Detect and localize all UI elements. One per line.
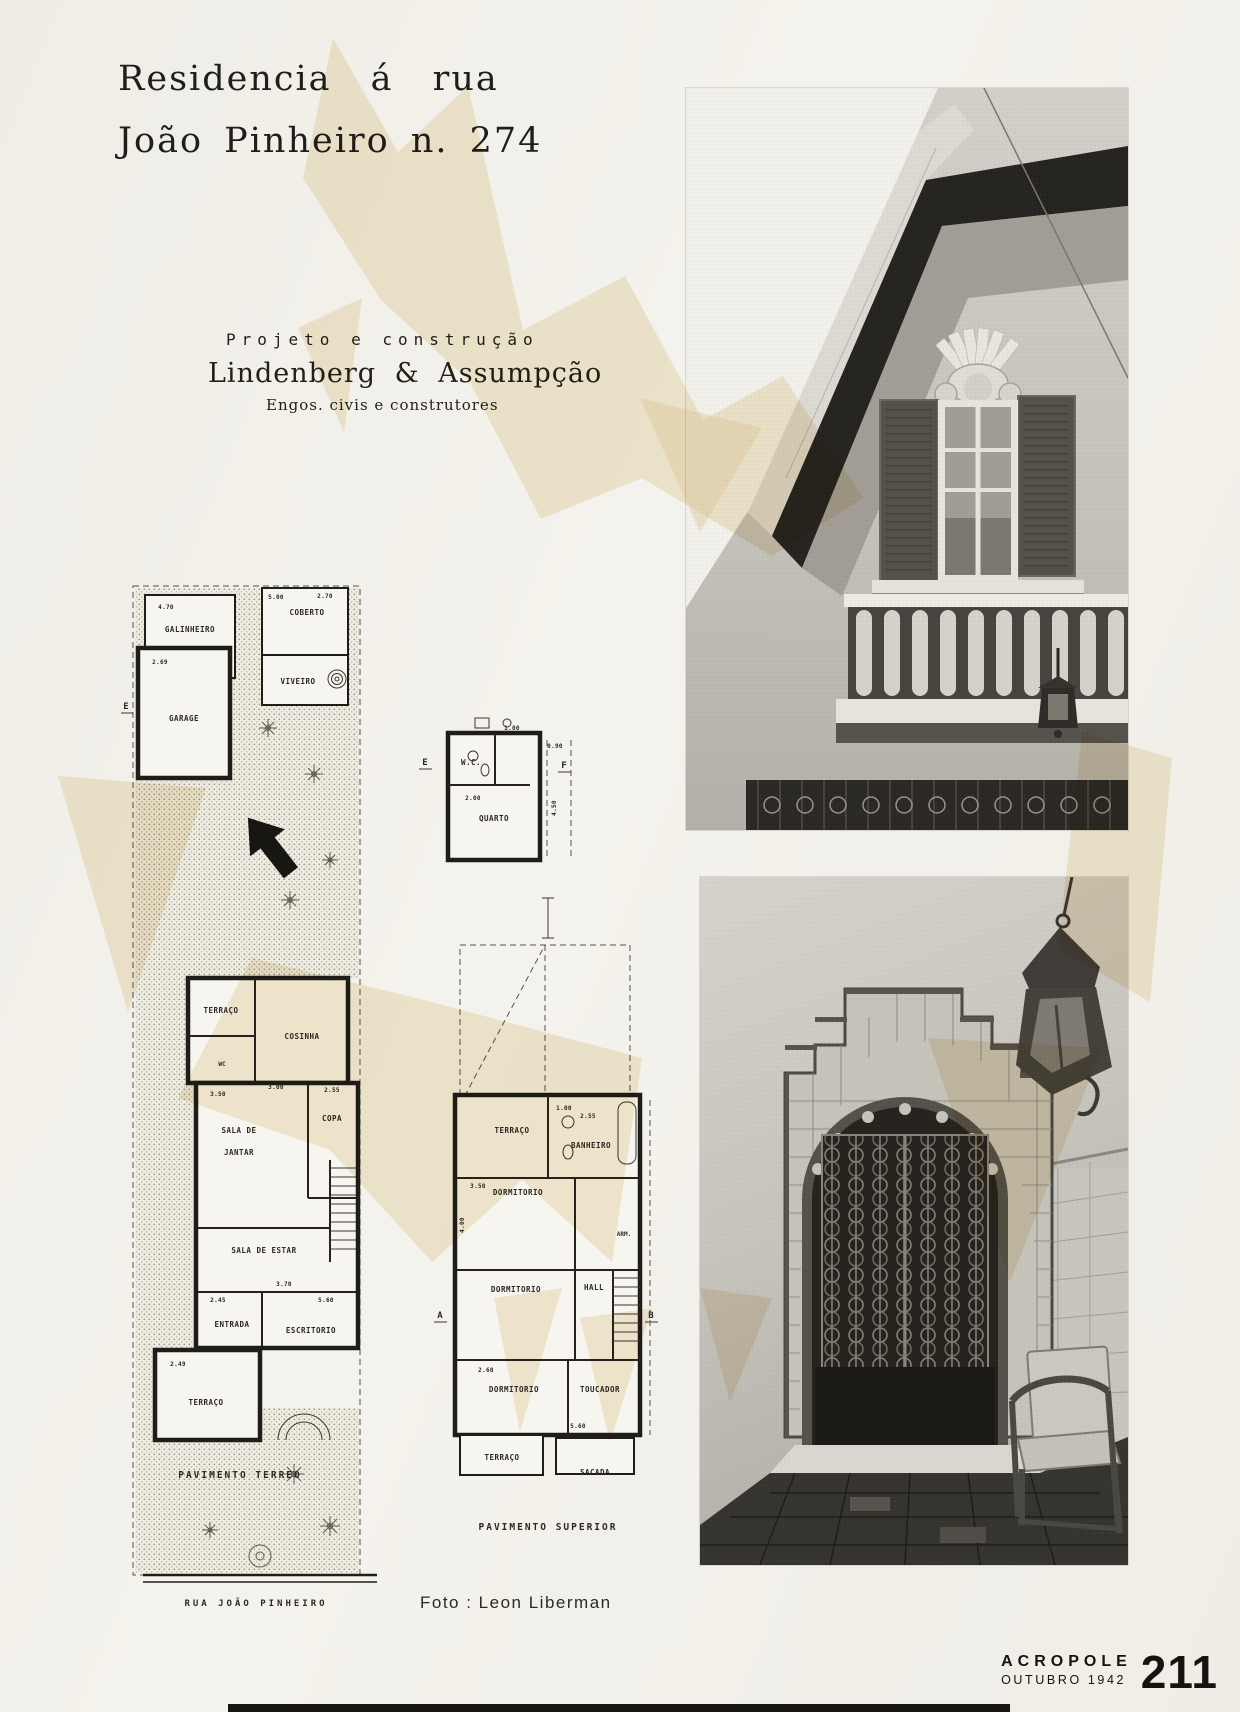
entrance-photo	[700, 877, 1128, 1565]
label-sala-jantar-2: JANTAR	[224, 1148, 254, 1157]
label-wc-kitchen: WC	[218, 1061, 226, 1068]
dim: 2.55	[324, 1087, 340, 1094]
upper-floor-plan: TERRAÇO BANHEIRO DORMITORIO ARM. DORMITO…	[428, 890, 663, 1550]
label-sala-estar: SALA DE ESTAR	[231, 1246, 296, 1255]
credit-line-1: Projeto e construção	[226, 330, 602, 349]
label-escritorio: ESCRITORIO	[286, 1326, 336, 1335]
page-title: Residencia á rua João Pinheiro n. 274	[118, 48, 542, 172]
window-balcony-photo	[686, 88, 1128, 830]
dim: 4.50	[551, 800, 558, 816]
label-cosinha: COSINHA	[284, 1032, 319, 1041]
page-footer: ACROPOLE OUTUBRO 1942 211	[1001, 1650, 1218, 1694]
project-credit: Projeto e construção Lindenberg & Assump…	[208, 330, 602, 414]
dim: 2.55	[580, 1113, 596, 1120]
photo-credit: Foto : Leon Liberman	[420, 1593, 612, 1613]
label-terraco-back: TERRAÇO	[494, 1126, 529, 1135]
scan-edge-strip	[228, 1704, 1010, 1712]
dim: 2.70	[317, 593, 333, 600]
section-marker-e: E	[422, 758, 427, 768]
label-quarto: QUARTO	[479, 814, 509, 823]
label-viveiro: VIVEIRO	[280, 677, 315, 686]
dim: 0.90	[547, 743, 563, 750]
dim: 5.60	[570, 1423, 586, 1430]
label-sala-jantar-1: SALA DE	[221, 1126, 256, 1135]
dim: 3.50	[470, 1183, 486, 1190]
credit-line-3: Engos. civis e construtores	[266, 396, 602, 414]
label-garage: GARAGE	[169, 714, 199, 723]
dim: 2.45	[210, 1297, 226, 1304]
label-galinheiro: GALINHEIRO	[165, 625, 215, 634]
title-line-2: João Pinheiro n. 274	[118, 110, 542, 172]
magazine-page: Residencia á rua João Pinheiro n. 274 Pr…	[0, 0, 1240, 1712]
label-hall: HALL	[584, 1283, 604, 1292]
dim: 2.00	[465, 795, 481, 802]
label-dorm2: DORMITORIO	[491, 1285, 541, 1294]
dim: 3.50	[210, 1091, 226, 1098]
page-number: 211	[1141, 1650, 1218, 1694]
label-arm: ARM.	[617, 1231, 631, 1238]
magazine-name: ACROPOLE	[1001, 1653, 1132, 1671]
label-banheiro: BANHEIRO	[571, 1141, 611, 1150]
dim: 2.69	[152, 659, 168, 666]
dim: 1.00	[504, 725, 520, 732]
dim: 2.49	[170, 1361, 186, 1368]
label-terraco-front: TERRAÇO	[188, 1398, 223, 1407]
room-garage	[138, 648, 230, 778]
label-terraco-front-upper: TERRAÇO	[484, 1453, 519, 1462]
section-marker-b: B	[648, 1311, 654, 1321]
dim: 5.60	[318, 1297, 334, 1304]
dim: 4.00	[459, 1217, 466, 1233]
ground-plan-caption: PAVIMENTO TERREO	[178, 1470, 302, 1481]
dim: 4.70	[158, 604, 174, 611]
ground-floor-plan: GALINHEIRO 4.70 COBERTO 5.00 2.70 VIVEIR…	[118, 578, 380, 1618]
dim: 3.00	[268, 1084, 284, 1091]
magazine-issue: OUTUBRO 1942	[1001, 1673, 1132, 1687]
label-dorm3: DORMITORIO	[489, 1385, 539, 1394]
annex-plan: W.C. QUARTO 2.00 1.00 4.50 0.90 E F	[415, 690, 575, 875]
dim: 3.70	[276, 1281, 292, 1288]
dim: 2.60	[478, 1367, 494, 1374]
dim: 1.00	[556, 1105, 572, 1112]
label-entrada: ENTRADA	[214, 1320, 249, 1329]
scale-mark	[542, 898, 554, 938]
credit-line-2: Lindenberg & Assumpção	[208, 358, 602, 389]
label-dorm1: DORMITORIO	[493, 1188, 543, 1197]
section-marker-e: E	[123, 702, 128, 712]
label-coberto: COBERTO	[289, 608, 324, 617]
label-annex-wc: W.C.	[461, 758, 481, 767]
section-marker-f: F	[561, 761, 566, 771]
section-marker-a: A	[437, 1311, 443, 1321]
title-line-1: Residencia á rua	[118, 48, 542, 110]
dim: 5.00	[268, 594, 284, 601]
kitchen-block	[188, 978, 348, 1083]
label-copa: COPA	[322, 1114, 342, 1123]
label-terraco-kitchen: TERRAÇO	[203, 1006, 238, 1015]
label-toucador: TOUCADOR	[580, 1385, 620, 1394]
street-label: RUA JOÃO PINHEIRO	[184, 1598, 327, 1609]
upper-plan-caption: PAVIMENTO SUPERIOR	[479, 1522, 618, 1533]
label-sacada: SACADA	[580, 1468, 610, 1477]
